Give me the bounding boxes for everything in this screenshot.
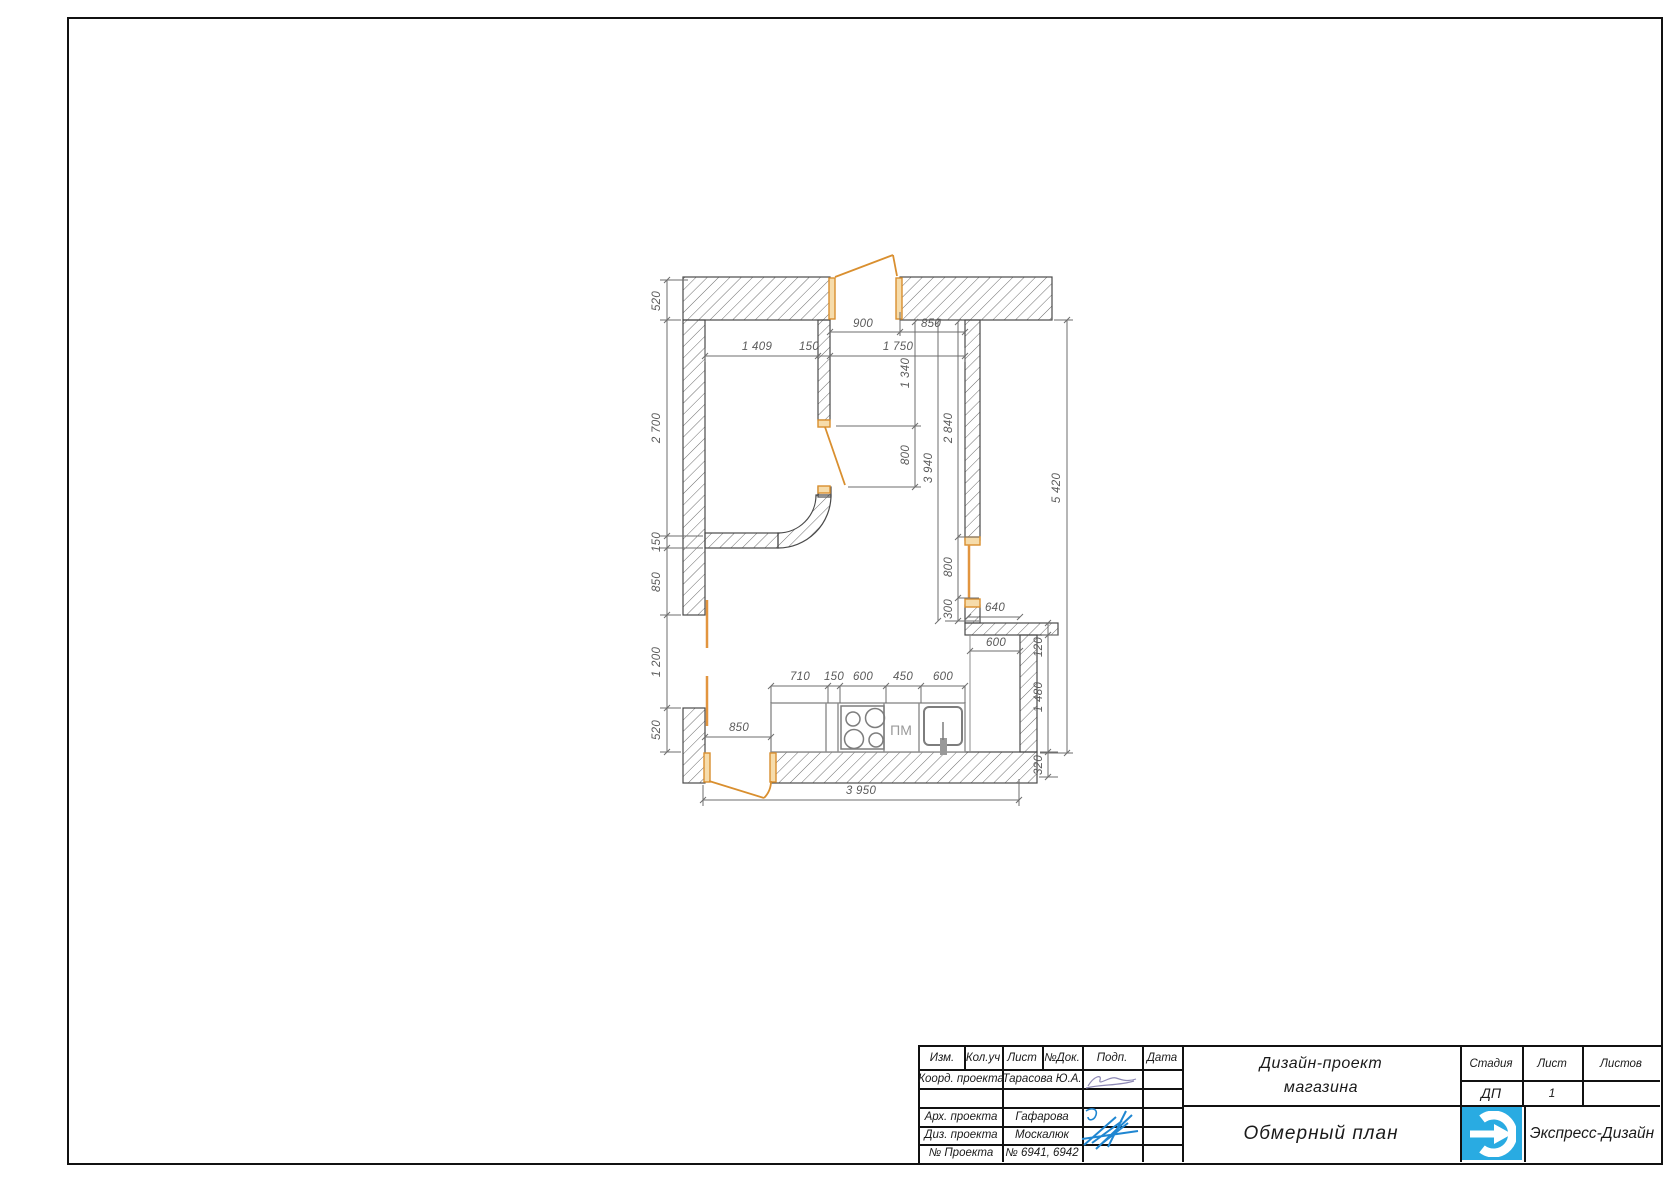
col-header-data: Дата [1142,1047,1182,1069]
row-value: № 6941, 6942 [1002,1144,1082,1162]
mid-door-jamb-top [818,420,830,427]
dim-2700: 2 700 [651,413,663,445]
row-role: Коорд. проекта [920,1069,1002,1088]
dim-850-left: 850 [651,572,663,592]
window-jamb-top [965,537,980,545]
dim-640: 640 [985,602,1005,614]
dim-520-bottom: 520 [651,720,663,740]
company-logo [1462,1107,1522,1160]
dim-2840: 2 840 [943,413,955,445]
top-door-jamb-right [896,278,902,319]
sheet-value: 1 [1522,1080,1582,1105]
bottom-door-swing [764,781,771,798]
top-door-swing [893,255,897,276]
dim-450: 450 [893,671,913,683]
express-design-logo-icon [1468,1111,1516,1157]
row-role: Диз. проекта [920,1126,1002,1144]
row-role: № Проекта [920,1144,1002,1162]
row-value: Тарасова Ю.А. [1002,1069,1082,1088]
bottom-door-jamb-left [704,753,710,782]
dim-520-top: 520 [651,291,663,311]
dim-900: 900 [853,318,873,330]
dim-150-counter: 150 [824,671,844,683]
row-value: Гафарова [1002,1107,1082,1126]
dim-1480: 1 480 [1033,682,1045,713]
stage-value: ДП [1460,1080,1522,1105]
title-block: Изм. Кол.уч Лист №Док. Подп. Дата Коорд.… [918,1045,1663,1165]
dim-1200: 1 200 [651,647,663,678]
dim-710: 710 [790,671,810,683]
project-title-line1: Дизайн-проект [1182,1051,1460,1077]
dim-5420: 5 420 [1051,473,1063,504]
dim-800-window: 800 [943,557,955,577]
dim-120: 120 [1033,637,1045,657]
sheets-value [1582,1080,1660,1105]
stage-label: Стадия [1460,1047,1522,1080]
col-header-izm: Изм. [920,1047,964,1069]
col-header-ndok: №Док. [1042,1047,1082,1069]
dim-600-sink: 600 [933,671,953,683]
dim-1340: 1 340 [900,358,912,389]
dim-150-left: 150 [651,532,663,552]
sheets-label: Листов [1582,1047,1660,1080]
dim-800-door: 800 [900,445,912,465]
dim-600-stove: 600 [853,671,873,683]
row-role [920,1088,1002,1107]
company-name: Экспресс-Дизайн [1524,1105,1660,1162]
dim-1750: 1 750 [883,341,914,353]
bottom-door-jamb-right [770,753,776,782]
dim-3950: 3 950 [846,785,877,797]
sheet-label: Лист [1522,1047,1582,1080]
row-value [1002,1088,1082,1107]
dim-1409: 1 409 [742,341,773,353]
row-role: Арх. проекта [920,1107,1002,1126]
col-header-podp: Подп. [1082,1047,1142,1069]
window-jamb-bottom [965,599,980,607]
drawing-title: Обмерный план [1182,1105,1460,1162]
floor-plan: ПМ [0,0,1680,1187]
dishwasher-label: ПМ [890,722,912,738]
col-header-list: Лист [1002,1047,1042,1069]
dim-600-niche: 600 [986,637,1006,649]
dim-300: 300 [943,599,955,619]
dim-850-top: 850 [921,318,941,330]
mid-door-leaf [825,427,845,485]
signature-designer [1078,1105,1152,1151]
col-header-koluch: Кол.уч [964,1047,1002,1069]
bottom-door-leaf [709,781,764,798]
dim-850-door: 850 [729,722,749,734]
kitchen-counter [771,635,970,752]
mid-door-jamb-bottom [818,486,830,493]
top-door-jamb-left [829,278,835,319]
dim-3940: 3 940 [923,453,935,484]
signature-coordinator [1084,1070,1140,1090]
dim-150-top: 150 [799,341,819,353]
top-door-leaf [835,255,893,277]
dim-320: 320 [1033,755,1045,775]
row-value: Москалюк [1002,1126,1082,1144]
project-title-line2: магазина [1182,1075,1460,1101]
